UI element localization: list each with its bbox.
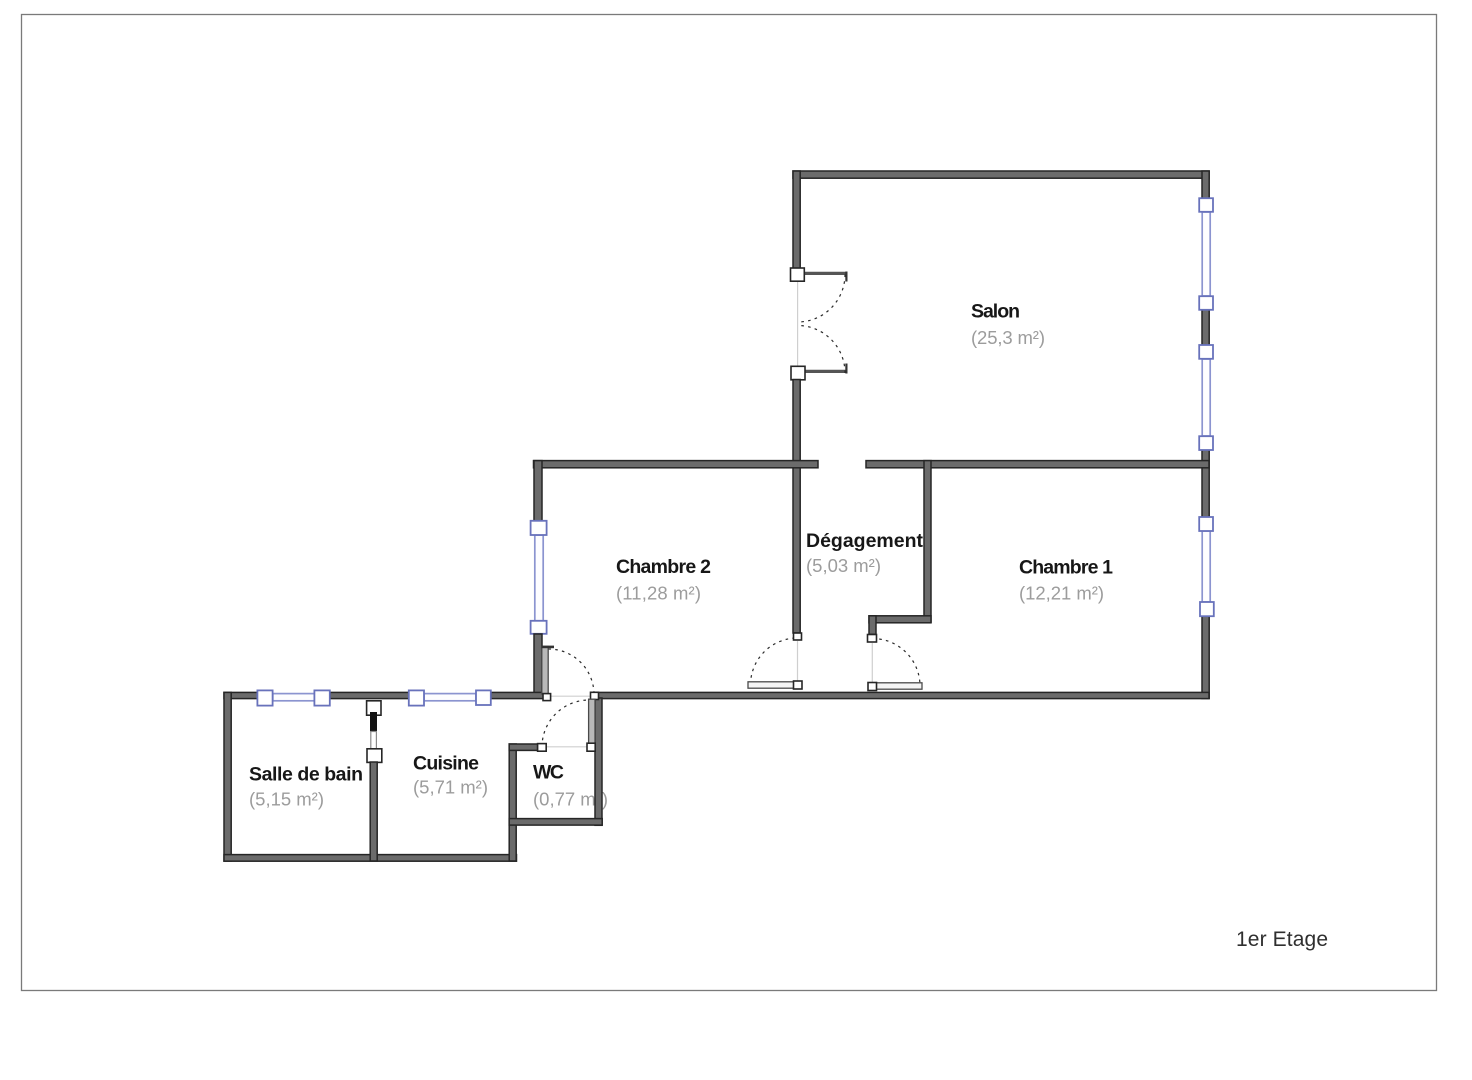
svg-text:Chambre 1: Chambre 1	[1019, 557, 1113, 579]
svg-text:(5,71 m²): (5,71 m²)	[413, 777, 488, 798]
svg-text:(5,15 m²): (5,15 m²)	[249, 789, 324, 810]
svg-text:Chambre 2: Chambre 2	[616, 556, 711, 578]
svg-text:(5,03 m²): (5,03 m²)	[806, 555, 881, 576]
svg-text:(25,3 m²): (25,3 m²)	[971, 327, 1045, 348]
svg-text:1er Etage: 1er Etage	[1236, 928, 1328, 951]
svg-text:WC: WC	[533, 762, 564, 784]
svg-text:Salle de bain: Salle de bain	[249, 764, 363, 786]
svg-text:Cuisine: Cuisine	[413, 753, 479, 775]
svg-text:Salon: Salon	[971, 301, 1020, 323]
svg-text:(11,28 m²): (11,28 m²)	[616, 583, 701, 604]
svg-text:(12,21 m²): (12,21 m²)	[1019, 583, 1104, 604]
svg-text:Dégagement: Dégagement	[806, 530, 924, 552]
